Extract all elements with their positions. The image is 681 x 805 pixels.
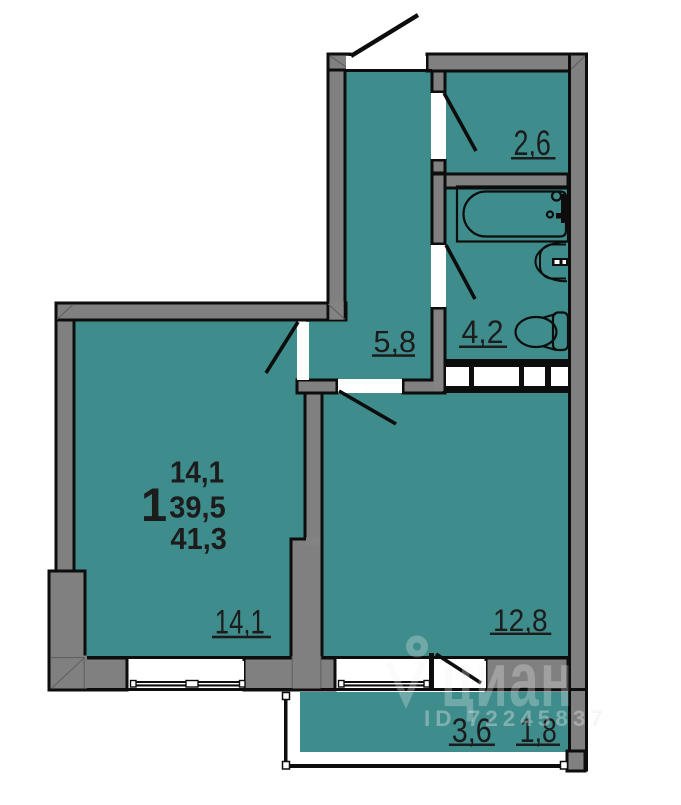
svg-text:5,8: 5,8: [374, 324, 417, 359]
svg-text:14,1: 14,1: [170, 454, 224, 489]
svg-text:1: 1: [141, 478, 167, 531]
svg-text:39,5: 39,5: [169, 490, 225, 525]
svg-text:41,3: 41,3: [171, 521, 227, 556]
svg-text:4,2: 4,2: [462, 314, 504, 350]
svg-text:ID 72245837: ID 72245837: [424, 706, 608, 731]
